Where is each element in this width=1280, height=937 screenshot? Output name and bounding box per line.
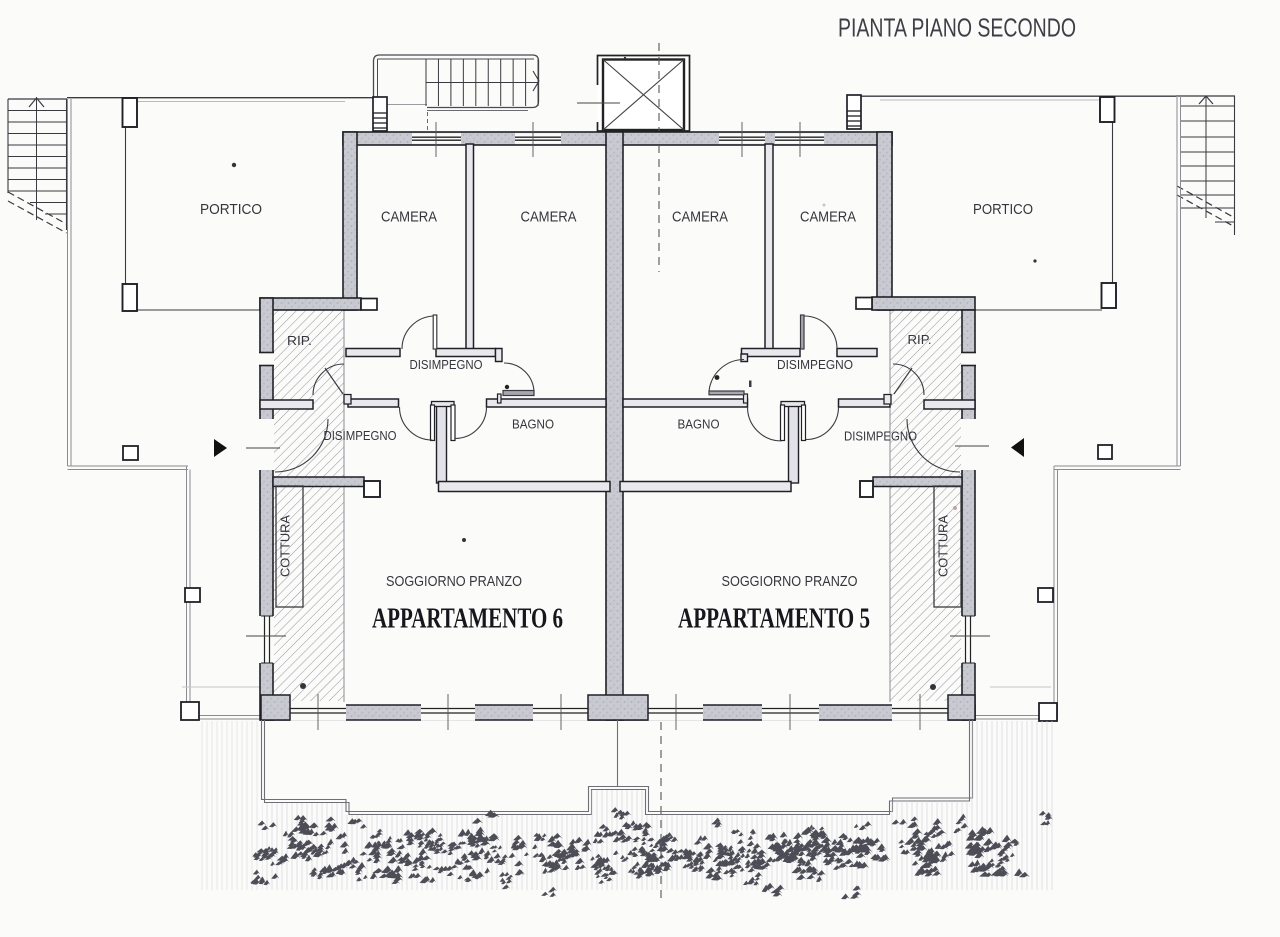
svg-text:APPARTAMENTO 5: APPARTAMENTO 5 [678, 604, 870, 635]
svg-text:DISIMPEGNO: DISIMPEGNO [324, 428, 397, 443]
svg-text:SOGGIORNO PRANZO: SOGGIORNO PRANZO [386, 574, 522, 590]
svg-text:BAGNO: BAGNO [512, 417, 554, 432]
svg-text:CAMERA: CAMERA [521, 210, 577, 226]
svg-text:SOGGIORNO PRANZO: SOGGIORNO PRANZO [722, 574, 858, 590]
svg-text:PIANTA PIANO SECONDO: PIANTA PIANO SECONDO [838, 13, 1076, 43]
svg-text:APPARTAMENTO 6: APPARTAMENTO 6 [372, 604, 563, 635]
svg-text:CAMERA: CAMERA [672, 210, 728, 226]
svg-text:RIP.: RIP. [287, 333, 312, 348]
svg-text:DISIMPEGNO: DISIMPEGNO [844, 429, 917, 444]
svg-text:DISIMPEGNO: DISIMPEGNO [777, 357, 853, 372]
svg-text:RIP.: RIP. [908, 332, 932, 347]
svg-text:CAMERA: CAMERA [381, 210, 437, 226]
svg-text:PORTICO: PORTICO [973, 202, 1033, 218]
svg-text:COTTURA: COTTURA [279, 514, 293, 577]
svg-text:PORTICO: PORTICO [200, 202, 262, 218]
svg-text:COTTURA: COTTURA [937, 514, 951, 577]
svg-text:CAMERA: CAMERA [800, 210, 856, 226]
svg-text:DISIMPEGNO: DISIMPEGNO [410, 357, 483, 372]
svg-text:BAGNO: BAGNO [678, 417, 720, 432]
